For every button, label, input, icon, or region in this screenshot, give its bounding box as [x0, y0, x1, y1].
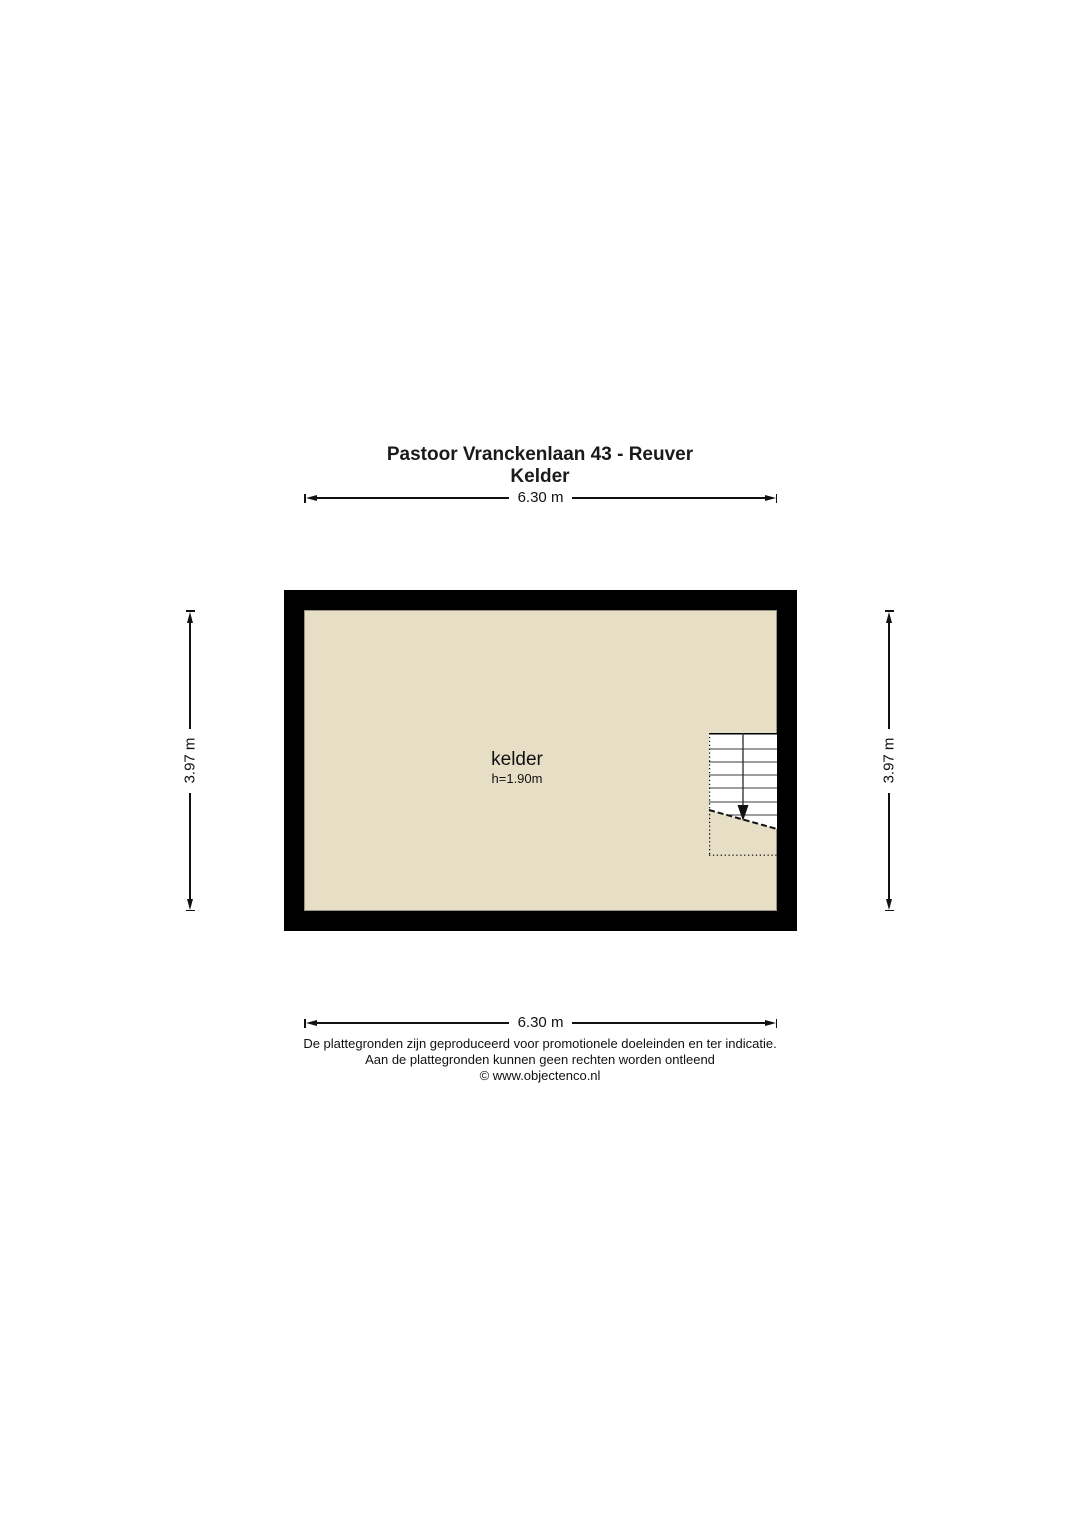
floor-title: Kelder [0, 466, 1080, 488]
dimension-line [189, 793, 190, 899]
dimension-label: 3.97 m [182, 738, 199, 784]
stairs [709, 733, 777, 856]
room-label-block: kelder h=1.90m [491, 749, 543, 786]
arrow-down-icon [886, 899, 892, 910]
room-name: kelder [491, 749, 543, 771]
dimension-end-tick [776, 494, 778, 503]
dimension-label: 3.97 m [881, 738, 898, 784]
arrow-left-icon [306, 495, 317, 501]
disclaimer-block: De plattegronden zijn geproduceerd voor … [0, 1036, 1080, 1084]
dimension-label: 6.30 m [509, 490, 573, 506]
dimension-line [572, 497, 764, 498]
arrow-down-icon [187, 899, 193, 910]
dimension-label-box: 3.97 m [881, 729, 897, 793]
dimension-line [888, 793, 889, 899]
dimension-end-tick [186, 910, 195, 912]
dimension-bottom: 6.30 m [304, 1015, 777, 1031]
dimension-end-tick [776, 1019, 778, 1028]
disclaimer-line-2: Aan de plattegronden kunnen geen rechten… [0, 1052, 1080, 1068]
disclaimer-line-1: De plattegronden zijn geproduceerd voor … [0, 1036, 1080, 1052]
dimension-right: 3.97 m [881, 610, 897, 911]
dimension-line [888, 623, 889, 729]
dimension-label: 6.30 m [509, 1015, 573, 1031]
dimension-line [189, 623, 190, 729]
dimension-left: 3.97 m [182, 610, 198, 911]
floorplan-page: Pastoor Vranckenlaan 43 - Reuver Kelder … [0, 0, 1080, 1527]
arrow-right-icon [765, 495, 776, 501]
arrow-left-icon [306, 1020, 317, 1026]
copyright-line: © www.objectenco.nl [0, 1068, 1080, 1084]
dimension-line [317, 497, 509, 498]
arrow-up-icon [187, 612, 193, 623]
ceiling-height-label: h=1.90m [491, 771, 543, 786]
arrow-up-icon [886, 612, 892, 623]
dimension-line [572, 1022, 764, 1023]
dimension-top: 6.30 m [304, 490, 777, 506]
arrow-right-icon [765, 1020, 776, 1026]
dimension-end-tick [885, 910, 894, 912]
page-title: Pastoor Vranckenlaan 43 - Reuver [0, 444, 1080, 466]
dimension-line [317, 1022, 509, 1023]
title-block: Pastoor Vranckenlaan 43 - Reuver Kelder [0, 444, 1080, 488]
dimension-label-box: 3.97 m [182, 729, 198, 793]
